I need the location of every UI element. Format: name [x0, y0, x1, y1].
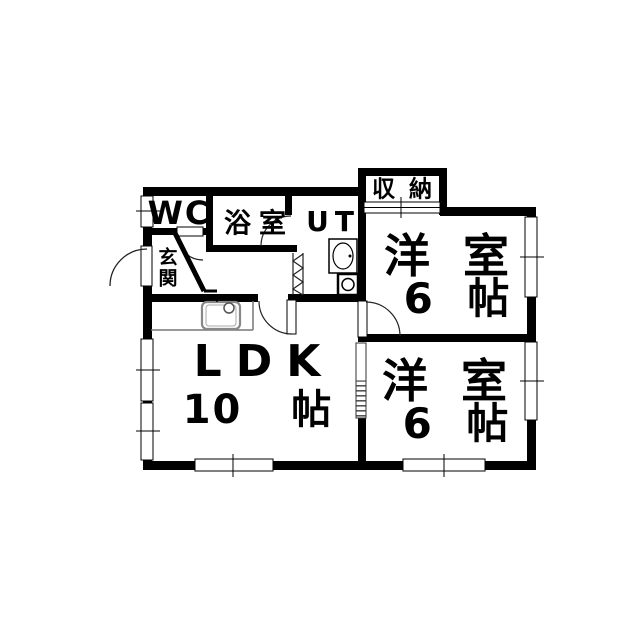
closet-label: 収納	[358, 179, 446, 202]
bedroom-upper-name: 洋 室	[384, 233, 510, 279]
floorplan-page: WC 浴室 UT 収納 玄関 洋 室 6 帖 洋 室 6 帖 LDK 10 帖	[0, 0, 639, 640]
wall-closet-top	[358, 168, 447, 176]
bedroom-upper-door-leaf	[358, 301, 367, 337]
ldk-door-leaf	[287, 300, 296, 334]
bedroom-lower-slide-track	[356, 381, 366, 418]
entrance-door-leaf	[141, 246, 152, 286]
ldk-size: 10 帖	[183, 390, 334, 430]
wall-mid-vertical-lower	[358, 418, 366, 464]
washbasin-drain	[349, 255, 352, 258]
entrance-step-line	[175, 233, 204, 291]
ldk-name: LDK	[180, 340, 335, 384]
wall-ldk-top	[143, 294, 258, 302]
bathroom-label: 浴室	[216, 211, 294, 238]
bedroom-lower-slide-leaf	[356, 343, 366, 381]
entrance-label: 玄関	[157, 247, 176, 289]
floorplan-drawing	[0, 0, 639, 640]
bedroom-upper-size: 6 帖	[404, 278, 511, 320]
wall-top-right	[440, 207, 536, 216]
washing-machine-drain	[342, 279, 354, 291]
folding-door	[293, 253, 303, 295]
wall-bath-bottom	[206, 245, 297, 252]
bedroom-upper-door-arc	[366, 302, 400, 336]
bedroom-lower-size: 6 帖	[403, 403, 510, 445]
utility-label: UT	[300, 208, 360, 236]
window-bottom-ldk	[195, 459, 273, 471]
bedroom-lower-name: 洋 室	[382, 358, 508, 404]
wall-bedroom-divider	[358, 334, 536, 342]
wc-label: WC	[148, 197, 211, 229]
faucet	[224, 303, 234, 313]
